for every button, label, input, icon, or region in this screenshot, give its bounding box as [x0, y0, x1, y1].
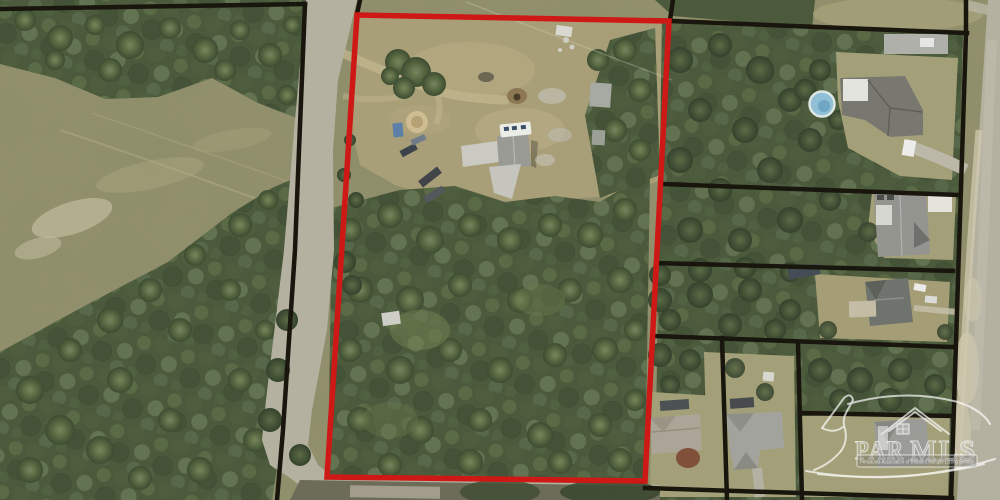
- aerial-photo: PAR MLS Pensacola Association of Realtor…: [0, 0, 1000, 500]
- watermark-tagline: Pensacola Association of Realtors Multip…: [860, 460, 974, 466]
- photo-grain: [0, 0, 1000, 500]
- aerial-parcel-map: PAR MLS Pensacola Association of Realtor…: [0, 0, 1000, 500]
